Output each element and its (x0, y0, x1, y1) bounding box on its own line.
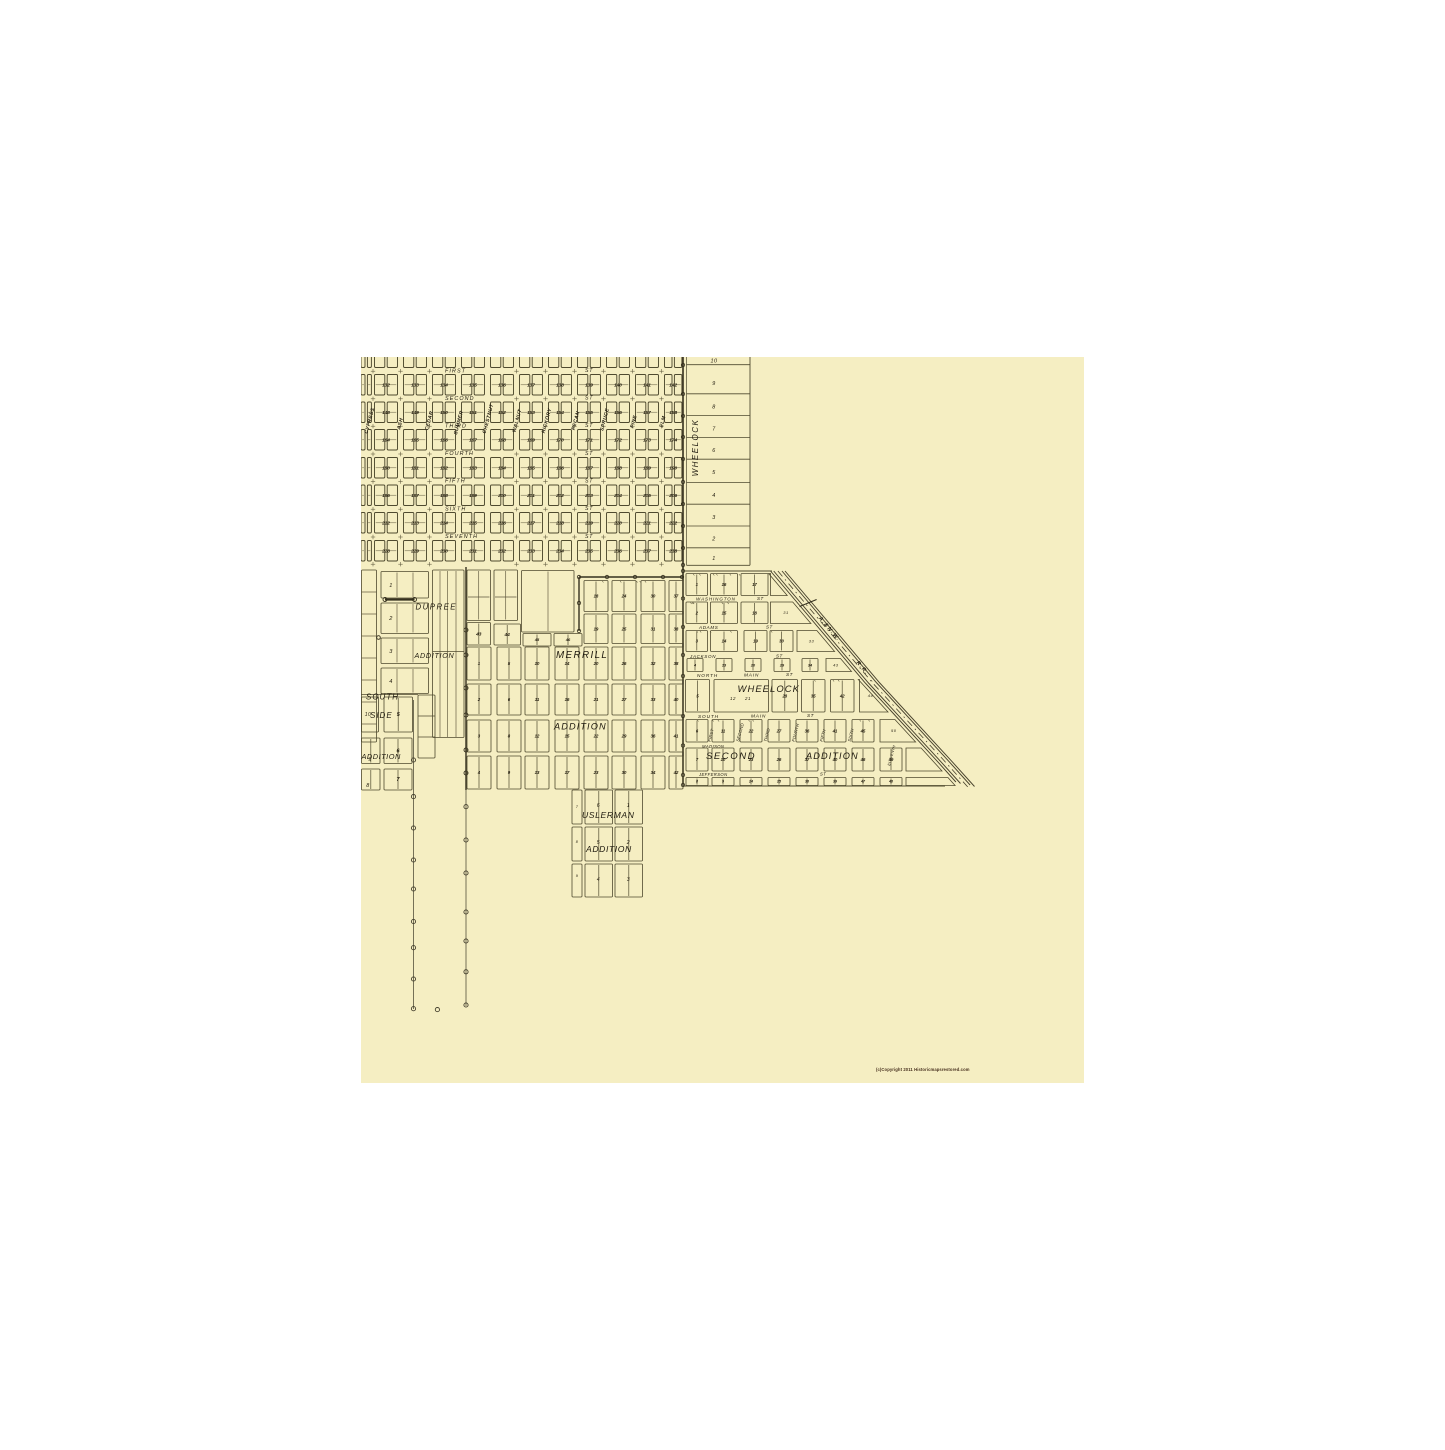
svg-text:186: 186 (556, 465, 564, 470)
svg-text:138: 138 (556, 382, 564, 387)
svg-text:JEFFERSON: JEFFERSON (698, 772, 728, 777)
svg-text:217: 217 (526, 520, 535, 525)
svg-text:22: 22 (593, 734, 599, 739)
svg-text:165: 165 (411, 437, 419, 442)
svg-text:ST: ST (585, 423, 593, 429)
svg-text:3: 3 (627, 877, 630, 883)
svg-text:ST: ST (766, 624, 774, 629)
svg-text:26: 26 (621, 661, 627, 666)
svg-text:16: 16 (565, 697, 570, 702)
svg-text:38: 38 (674, 661, 679, 666)
svg-text:36: 36 (651, 734, 656, 739)
svg-text:172: 172 (614, 437, 622, 442)
svg-text:148: 148 (382, 410, 390, 415)
svg-text:DUPREE: DUPREE (416, 603, 458, 612)
svg-text:10: 10 (711, 359, 718, 365)
svg-text:46: 46 (565, 637, 571, 642)
svg-text:SOUTH: SOUTH (366, 693, 399, 702)
svg-text:33: 33 (651, 697, 656, 702)
svg-text:SIDE: SIDE (370, 711, 393, 720)
svg-text:132: 132 (382, 382, 390, 387)
svg-text:21: 21 (744, 696, 751, 701)
svg-text:3: 3 (389, 649, 393, 655)
svg-text:139: 139 (585, 382, 593, 387)
svg-text:8: 8 (696, 780, 698, 784)
svg-text:ADDITION: ADDITION (414, 651, 455, 660)
svg-text:14: 14 (722, 639, 727, 644)
svg-text:1: 1 (389, 583, 393, 589)
svg-text:44: 44 (504, 632, 511, 638)
svg-text:ADAMS: ADAMS (698, 625, 719, 630)
svg-text:WHEELOCK: WHEELOCK (691, 419, 700, 477)
svg-text:50: 50 (891, 728, 897, 733)
svg-text:24: 24 (748, 780, 753, 784)
svg-text:USLERMAN: USLERMAN (582, 810, 635, 820)
svg-text:22: 22 (748, 728, 754, 733)
svg-text:205: 205 (642, 493, 651, 498)
svg-text:45: 45 (860, 728, 866, 733)
svg-text:NORTH: NORTH (697, 673, 718, 678)
svg-text:ADDITION: ADDITION (805, 751, 859, 761)
svg-text:12: 12 (535, 734, 540, 739)
svg-text:43: 43 (833, 663, 839, 668)
svg-text:(c)Copyright 2011 Historicmaps: (c)Copyright 2011 Historicmapsrestored.c… (876, 1067, 970, 1072)
svg-text:27: 27 (621, 697, 627, 702)
svg-text:11: 11 (721, 728, 726, 733)
svg-text:SEVENTH: SEVENTH (445, 534, 478, 540)
svg-text:230: 230 (439, 548, 448, 553)
svg-text:155: 155 (585, 410, 593, 415)
svg-text:ADDITION: ADDITION (585, 844, 632, 854)
svg-text:41: 41 (673, 734, 679, 739)
svg-text:17: 17 (565, 770, 570, 775)
svg-text:45: 45 (534, 637, 540, 642)
svg-text:164: 164 (382, 437, 390, 442)
svg-text:42: 42 (673, 770, 679, 775)
svg-text:43: 43 (475, 631, 482, 637)
svg-text:ST: ST (585, 506, 593, 512)
svg-text:142: 142 (669, 382, 677, 387)
svg-text:202: 202 (555, 493, 564, 498)
svg-text:7: 7 (576, 805, 579, 809)
svg-text:167: 167 (469, 437, 477, 442)
svg-text:16: 16 (722, 582, 727, 587)
svg-text:46: 46 (860, 757, 866, 762)
svg-text:38: 38 (805, 780, 809, 784)
svg-text:4: 4 (597, 877, 600, 883)
svg-text:188: 188 (614, 465, 622, 470)
svg-text:18: 18 (752, 610, 757, 615)
svg-text:8: 8 (576, 840, 579, 844)
svg-text:200: 200 (497, 493, 506, 498)
svg-text:21: 21 (593, 697, 599, 702)
svg-text:8: 8 (366, 783, 370, 789)
svg-text:ST: ST (807, 713, 815, 718)
svg-text:9: 9 (712, 381, 716, 387)
svg-text:238: 238 (668, 548, 677, 553)
svg-text:150: 150 (440, 410, 448, 415)
svg-text:15: 15 (565, 734, 570, 739)
svg-text:20: 20 (750, 664, 756, 668)
svg-text:231: 231 (468, 548, 477, 553)
svg-text:49: 49 (888, 757, 894, 762)
svg-text:SECOND: SECOND (706, 751, 756, 762)
svg-text:10: 10 (535, 661, 540, 666)
svg-text:237: 237 (642, 548, 651, 553)
svg-text:SIXTH: SIXTH (445, 506, 466, 512)
svg-text:212: 212 (381, 520, 390, 525)
svg-text:137: 137 (527, 382, 535, 387)
svg-text:228: 228 (381, 548, 390, 553)
svg-text:25: 25 (621, 626, 627, 631)
svg-text:30: 30 (779, 639, 784, 644)
svg-text:20: 20 (593, 661, 599, 666)
svg-text:219: 219 (584, 520, 593, 525)
svg-text:ST: ST (585, 368, 593, 374)
svg-text:40: 40 (673, 697, 679, 702)
svg-text:ST: ST (757, 596, 765, 601)
svg-text:ST: ST (585, 396, 593, 402)
svg-text:6: 6 (597, 803, 600, 809)
svg-text:14: 14 (565, 661, 570, 666)
svg-text:23: 23 (593, 770, 599, 775)
svg-text:19: 19 (594, 626, 599, 631)
svg-text:41: 41 (832, 728, 838, 733)
svg-text:36: 36 (805, 728, 810, 733)
svg-text:184: 184 (498, 465, 506, 470)
svg-text:MERRILL: MERRILL (556, 650, 608, 661)
svg-text:15: 15 (722, 610, 727, 615)
svg-text:229: 229 (410, 548, 419, 553)
svg-text:199: 199 (469, 493, 477, 498)
svg-text:6: 6 (712, 448, 716, 454)
svg-text:31: 31 (783, 610, 788, 615)
svg-text:MAIN: MAIN (751, 713, 766, 718)
svg-text:4: 4 (712, 493, 716, 499)
svg-text:27: 27 (776, 728, 782, 733)
svg-text:154: 154 (556, 410, 564, 415)
svg-text:213: 213 (410, 520, 419, 525)
svg-text:149: 149 (411, 410, 419, 415)
svg-text:19: 19 (753, 639, 758, 644)
svg-text:8: 8 (712, 405, 716, 411)
svg-text:215: 215 (468, 520, 477, 525)
svg-text:24: 24 (621, 594, 627, 599)
svg-text:196: 196 (382, 493, 390, 498)
svg-text:29: 29 (621, 734, 627, 739)
svg-text:28: 28 (781, 693, 787, 698)
svg-text:9: 9 (722, 780, 724, 784)
svg-text:33: 33 (809, 639, 815, 644)
svg-text:201: 201 (526, 493, 535, 498)
svg-text:133: 133 (411, 382, 419, 387)
svg-text:FOURTH: FOURTH (445, 451, 474, 457)
svg-text:234: 234 (555, 548, 564, 553)
svg-text:48: 48 (888, 780, 893, 784)
svg-text:233: 233 (526, 548, 535, 553)
svg-text:168: 168 (498, 437, 506, 442)
svg-text:5: 5 (712, 470, 716, 476)
svg-text:30: 30 (651, 594, 656, 599)
svg-text:166: 166 (440, 437, 448, 442)
svg-text:136: 136 (498, 382, 506, 387)
svg-text:171: 171 (585, 437, 593, 442)
svg-text:183: 183 (469, 465, 477, 470)
svg-text:FIFTH: FIFTH (445, 479, 466, 485)
svg-text:32: 32 (651, 661, 656, 666)
svg-text:197: 197 (411, 493, 419, 498)
svg-text:ST: ST (585, 534, 593, 540)
svg-text:34: 34 (651, 770, 656, 775)
svg-text:157: 157 (643, 410, 651, 415)
svg-text:WHEELOCK: WHEELOCK (738, 683, 800, 694)
svg-text:214: 214 (439, 520, 448, 525)
svg-text:ST: ST (585, 451, 593, 457)
svg-text:206: 206 (668, 493, 677, 498)
svg-text:11: 11 (535, 697, 540, 702)
svg-text:WASHINGTON: WASHINGTON (696, 596, 736, 601)
svg-text:181: 181 (411, 465, 419, 470)
svg-text:17: 17 (752, 582, 757, 587)
svg-text:SOUTH: SOUTH (698, 714, 719, 719)
svg-text:232: 232 (497, 548, 506, 553)
svg-text:FIRST: FIRST (445, 368, 466, 374)
svg-text:37: 37 (674, 594, 679, 599)
svg-text:180: 180 (382, 465, 390, 470)
svg-text:3: 3 (712, 515, 716, 521)
svg-text:13: 13 (535, 770, 540, 775)
svg-text:182: 182 (440, 465, 448, 470)
svg-text:ADDITION: ADDITION (361, 752, 401, 761)
svg-text:ADDITION: ADDITION (553, 722, 607, 732)
svg-text:7: 7 (712, 427, 716, 433)
svg-text:204: 204 (613, 493, 622, 498)
svg-text:134: 134 (440, 382, 448, 387)
svg-text:174: 174 (669, 437, 677, 442)
svg-text:30: 30 (622, 770, 627, 775)
svg-text:189: 189 (643, 465, 651, 470)
svg-text:203: 203 (584, 493, 593, 498)
svg-text:185: 185 (527, 465, 535, 470)
svg-text:ST: ST (786, 672, 794, 677)
svg-text:236: 236 (613, 548, 622, 553)
svg-text:38: 38 (674, 626, 679, 631)
svg-text:220: 220 (613, 520, 622, 525)
svg-text:31: 31 (651, 626, 656, 631)
svg-text:190: 190 (669, 465, 677, 470)
svg-text:ST: ST (820, 771, 826, 776)
svg-text:216: 216 (497, 520, 506, 525)
svg-text:42: 42 (839, 693, 845, 698)
svg-text:26: 26 (776, 757, 782, 762)
svg-text:29: 29 (779, 664, 785, 668)
svg-text:18: 18 (594, 594, 599, 599)
svg-text:SECOND: SECOND (445, 396, 475, 402)
svg-text:198: 198 (440, 493, 448, 498)
svg-text:2: 2 (388, 616, 393, 622)
svg-text:MAIN: MAIN (744, 673, 759, 678)
svg-text:156: 156 (614, 410, 622, 415)
svg-text:1: 1 (712, 556, 716, 562)
svg-text:140: 140 (614, 382, 622, 387)
svg-text:173: 173 (643, 437, 651, 442)
svg-text:2: 2 (711, 537, 716, 543)
svg-text:135: 135 (469, 382, 477, 387)
svg-text:235: 235 (584, 548, 593, 553)
svg-text:222: 222 (668, 520, 677, 525)
svg-text:158: 158 (669, 410, 677, 415)
svg-text:218: 218 (555, 520, 564, 525)
svg-text:170: 170 (556, 437, 564, 442)
svg-text:9: 9 (576, 874, 579, 878)
svg-text:187: 187 (585, 465, 593, 470)
svg-text:1: 1 (627, 803, 630, 809)
svg-text:ST: ST (585, 478, 593, 484)
svg-text:44: 44 (868, 693, 874, 698)
svg-text:151: 151 (469, 410, 477, 415)
svg-text:4: 4 (389, 679, 393, 685)
svg-text:35: 35 (811, 693, 816, 698)
svg-text:152: 152 (498, 410, 506, 415)
svg-text:ST: ST (776, 653, 784, 658)
svg-text:153: 153 (527, 410, 535, 415)
svg-text:39: 39 (833, 780, 837, 784)
svg-text:169: 169 (527, 437, 535, 442)
svg-text:141: 141 (643, 382, 651, 387)
svg-text:12: 12 (730, 696, 736, 701)
svg-text:221: 221 (642, 520, 651, 525)
